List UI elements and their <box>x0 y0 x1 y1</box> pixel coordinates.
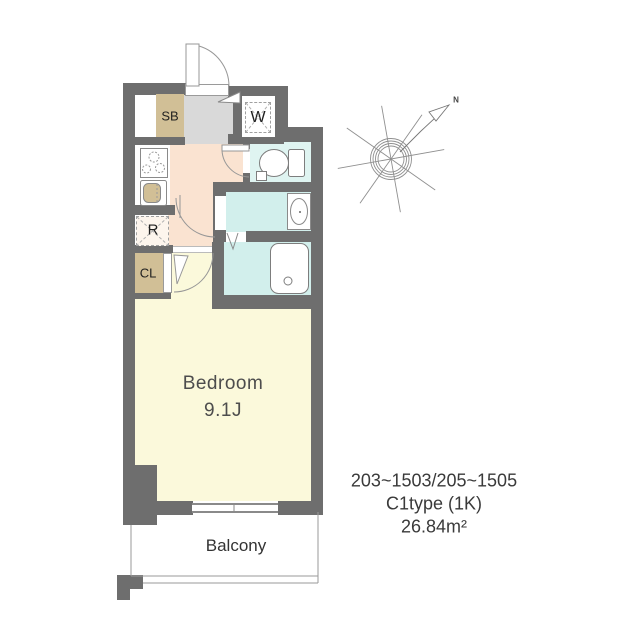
balcony-label: Balcony <box>206 536 266 556</box>
bedroom-doorway <box>173 246 212 253</box>
toilet-doorway <box>243 149 250 173</box>
bathroom-floor <box>224 242 311 296</box>
bedroom-size-label: 9.1J <box>204 400 242 422</box>
unit-info-area: 26.84m² <box>351 516 517 539</box>
bedroom-label: Bedroom <box>183 373 264 395</box>
wall-bath-bottom <box>212 295 323 309</box>
unit-info-room-numbers: 203~1503/205~1505 <box>351 470 517 493</box>
kitchen-hall-floor-b <box>170 182 214 216</box>
washroom-doorway <box>215 196 226 230</box>
balcony-pillar-b <box>117 588 130 600</box>
entrance-threshold <box>185 84 229 96</box>
wall-bottom-left-block <box>123 465 157 525</box>
wall-left <box>123 83 135 525</box>
compass-icon <box>338 105 449 212</box>
wall-wash-bath-divider <box>246 231 311 242</box>
bathroom-doorway <box>226 232 246 242</box>
kitchen-counter-area <box>135 144 171 206</box>
balcony-pillar-a <box>117 575 143 589</box>
kitchen-hall-floor-a <box>170 144 244 184</box>
washroom-floor <box>226 192 311 232</box>
kitchen-hall-floor-c <box>168 215 214 246</box>
washer-label: W <box>250 109 265 127</box>
bedroom-floor <box>135 295 311 501</box>
wall-bottom-right <box>278 501 323 515</box>
wall-right <box>311 140 323 515</box>
wall-kitchen-stub <box>135 205 175 215</box>
fridge-label: R <box>148 222 159 239</box>
wall-toilet-left-b <box>243 172 250 182</box>
unit-info: 203~1503/205~1505 C1type (1K) 26.84m² <box>351 470 517 539</box>
wall-under-shoebox <box>135 137 185 145</box>
floor-plan: SB W R CL Bedroom 9.1J Balcony N 203~150… <box>0 0 640 640</box>
entrance-door-icon <box>186 44 229 86</box>
compass-north-label: N <box>453 96 459 105</box>
unit-info-plan-type: C1type (1K) <box>351 493 517 516</box>
closet-label: CL <box>140 266 157 281</box>
closet-door <box>163 253 172 293</box>
wall-closet-bottom <box>135 293 171 299</box>
bedroom-entry-strip <box>171 253 213 297</box>
wall-fridge-closet-divider <box>135 245 173 253</box>
wall-bottom-arm <box>157 501 193 515</box>
wall-washroom-top <box>213 182 311 192</box>
toilet-room-floor <box>249 142 311 182</box>
balcony-window <box>192 503 278 513</box>
shoe-box-label: SB <box>161 109 178 124</box>
